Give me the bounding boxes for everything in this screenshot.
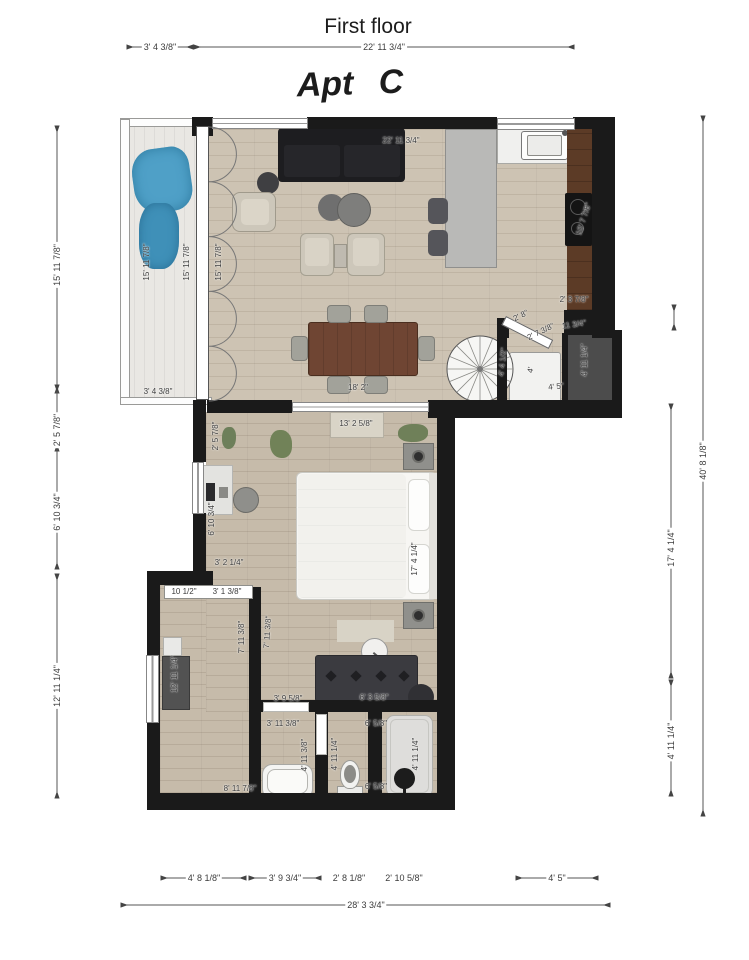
wall — [147, 793, 455, 810]
dimension-label: 2' 8 1/8" — [331, 873, 367, 883]
dimension-label: 6' 10 3/4" — [207, 502, 217, 535]
wall — [592, 117, 615, 338]
toilet-seat — [344, 765, 356, 783]
bar-stool — [428, 198, 448, 224]
desk-chair — [233, 487, 259, 513]
bed-duvet — [298, 474, 406, 598]
hallway-window — [146, 655, 159, 723]
dining-chair — [291, 336, 308, 361]
dimension-label: 4' 11 3/8" — [300, 739, 310, 772]
kitchen-sink-basin — [527, 135, 562, 156]
dimension-label: 4' 8 1/8" — [186, 873, 222, 883]
dimension-label: 4' 5" — [548, 381, 564, 393]
sofa-cushion — [344, 145, 400, 177]
dimension-label: 2' 3 7/8" — [560, 295, 589, 305]
balcony-window-top — [120, 118, 194, 127]
dimension-label: 3' 9 3/4" — [267, 873, 303, 883]
dimension-label: 17' 4 1/4" — [666, 527, 676, 568]
dimension-label: 12' 11 1/4" — [170, 655, 180, 692]
living-window-bottom — [292, 402, 429, 412]
armchair-seat — [305, 238, 329, 266]
lamp-icon — [412, 450, 425, 463]
dimension-label: 4' 11 1/4" — [666, 721, 676, 762]
ottoman — [337, 620, 394, 642]
keyboard-icon — [219, 487, 228, 498]
dimension-label: 8' 11 7/8" — [224, 784, 257, 794]
shower-head-icon — [394, 768, 415, 789]
side-table — [257, 172, 279, 194]
dimension-label: 15' 11 7/8" — [214, 243, 224, 280]
wall — [193, 513, 206, 575]
side-table — [334, 244, 347, 268]
pillow — [408, 479, 430, 531]
dimension-label: 4' 11 1/4" — [411, 738, 421, 771]
wall — [428, 400, 618, 418]
dining-chair — [418, 336, 435, 361]
armchair-seat — [241, 199, 269, 225]
dimension-label: 7' 11 3/8" — [237, 621, 247, 654]
plant — [398, 424, 428, 442]
dimension-label: 4' 11 1/4" — [580, 344, 590, 377]
wall — [307, 117, 497, 129]
dimension-label: 4' 11 1/4" — [330, 738, 340, 771]
dimension-label: 4' 5" — [546, 873, 567, 883]
dimension-label: 15' 11 7/8" — [52, 242, 62, 288]
dimension-label: 6' 10 3/4" — [52, 491, 62, 532]
lamp-icon — [412, 609, 425, 622]
dimension-label: 22' 11 3/4" — [382, 136, 419, 146]
plant — [270, 430, 292, 458]
bar-stool — [428, 230, 448, 256]
folding-door — [196, 126, 209, 400]
dimension-label: 6' 5/8" — [365, 719, 387, 729]
floor-plan: First floor Apt C — [0, 0, 749, 960]
monitor-icon — [206, 483, 215, 501]
dimension-label: 40' 8 1/8" — [698, 440, 708, 481]
plant — [222, 427, 236, 449]
page-title: First floor — [324, 15, 412, 39]
apartment-label: Apt C — [296, 63, 404, 106]
armchair-seat — [353, 238, 379, 266]
dimension-label: 28' 3 3/4" — [345, 900, 386, 910]
dimension-label: 3' 11 3/8" — [267, 719, 300, 729]
dimension-label: 2' 5 7/8" — [211, 422, 221, 451]
dimension-label: 6' 3 5/8" — [360, 693, 389, 703]
bathtub-basin — [267, 769, 308, 794]
coffee-table — [337, 193, 371, 227]
dimension-label: 2' 5 7/8" — [52, 412, 62, 448]
dining-table — [308, 322, 418, 376]
bed-headboard — [429, 473, 437, 599]
kitchen-window — [497, 118, 575, 130]
dimension-label: 18' 2" — [348, 383, 368, 393]
dimension-label: 10 1/2" — [171, 587, 196, 597]
dining-chair — [364, 305, 388, 323]
wall — [207, 400, 292, 413]
sofa-cushion — [284, 145, 340, 177]
dimension-label: 17' 4 1/4" — [410, 542, 420, 575]
living-window-top — [212, 118, 308, 129]
dimension-label: 2' 10 5/8" — [383, 873, 424, 883]
dimension-label: 15' 11 7/8" — [142, 243, 152, 280]
wall — [249, 587, 261, 793]
dimension-label: 13' 2 5/8" — [339, 419, 372, 429]
dimension-label: 22' 11 3/4" — [361, 42, 407, 52]
dimension-label: 3' 4 3/8" — [142, 42, 178, 52]
dimension-label: 3' 1 3/8" — [213, 587, 242, 597]
dimension-label: 3' 4 3/8" — [144, 387, 173, 397]
wall — [437, 400, 455, 805]
cabinet — [163, 637, 182, 656]
dimension-label: 15' 11 7/8" — [182, 243, 192, 280]
dining-chair — [327, 305, 351, 323]
bedroom-window — [192, 462, 204, 514]
dimension-label: 12' 11 1/4" — [52, 663, 62, 709]
door-opening — [316, 714, 327, 755]
kitchen-island — [445, 129, 497, 268]
balcony-window-left — [120, 119, 130, 404]
dimension-label: 6' 5/8" — [365, 782, 387, 792]
dimension-label: 3' 9 5/8" — [274, 694, 303, 704]
dimension-label: 3' 2 1/4" — [215, 558, 244, 568]
wall — [193, 400, 206, 462]
